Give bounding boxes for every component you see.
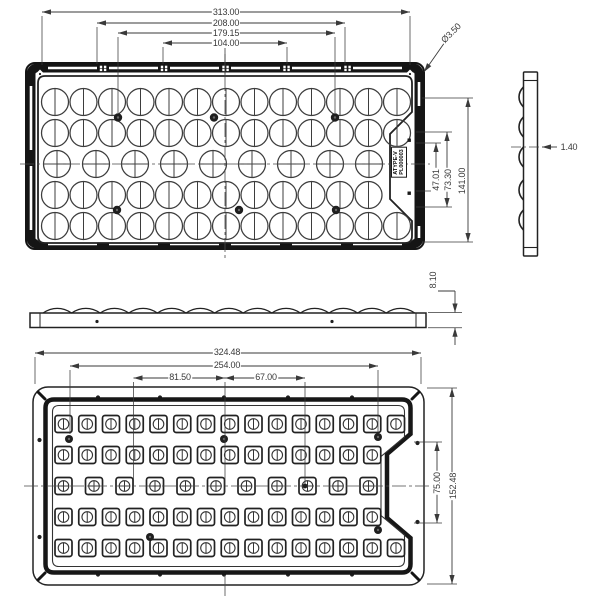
dim-top-height-inner: 47.01 <box>431 168 441 192</box>
bottom-view <box>24 387 434 596</box>
corner-screw-center <box>39 73 41 75</box>
dim-bottom-width-total: 324.48 <box>213 347 241 357</box>
dim-bottom-height-total: 152.48 <box>448 472 458 500</box>
screw-hole-center <box>68 438 70 440</box>
dim-arrow <box>278 40 287 45</box>
frame-clip <box>226 69 228 71</box>
frame-clip <box>222 66 224 68</box>
frame-clip <box>348 69 350 71</box>
dim-top-width-mid: 208.00 <box>212 18 240 28</box>
dim-arrow <box>296 375 305 380</box>
dim-arrow <box>163 40 172 45</box>
frame-clip <box>104 66 106 68</box>
frame-clip <box>344 69 346 71</box>
profile-dot <box>95 320 98 323</box>
drawing-sheet: 313.00 208.00 179.15 104.00 Ø3.50 47.01 … <box>0 0 600 600</box>
screw-hole-center <box>377 436 379 438</box>
dim-arrow <box>465 98 470 107</box>
dim-top-width-inner: 104.00 <box>212 38 240 48</box>
dim-arrow <box>118 30 127 35</box>
dim-top-width-holes: 179.15 <box>212 28 240 38</box>
dim-arrow <box>326 30 335 35</box>
frame-clip <box>222 69 224 71</box>
frame-clip <box>161 69 163 71</box>
frame-clip <box>165 69 167 71</box>
frame-clip <box>104 69 106 71</box>
frame-clip <box>165 66 167 68</box>
dim-arrow <box>452 304 457 313</box>
dim-arrow <box>444 198 449 207</box>
front-profile-view <box>30 308 426 327</box>
dim-arrow <box>433 143 438 152</box>
reference-dot <box>303 484 308 489</box>
screw-hole-center <box>335 209 337 211</box>
dim-arrow <box>542 144 551 149</box>
dim-arrow <box>70 363 79 368</box>
dim-bottom-width-right: 67.00 <box>254 372 278 382</box>
screw-hole-center <box>238 209 240 211</box>
screw-hole-center <box>213 116 215 118</box>
dim-arrow <box>369 363 378 368</box>
frame-clip <box>283 69 285 71</box>
dim-arrow <box>42 9 51 14</box>
dim-bottom-width-mid: 254.00 <box>213 360 241 370</box>
screw-hole-center <box>117 116 119 118</box>
frame-clip <box>100 69 102 71</box>
screw-hole-center <box>377 529 379 531</box>
frame-clip <box>344 66 346 68</box>
dim-arrow <box>449 575 454 584</box>
dim-arrow <box>216 375 225 380</box>
dim-arrow <box>412 350 421 355</box>
dim-arrow <box>134 375 143 380</box>
frame-clip <box>161 66 163 68</box>
dim-arrow <box>452 328 457 337</box>
dim-arrow <box>336 20 345 25</box>
dim-arrow <box>444 132 449 141</box>
dim-arrow <box>465 233 470 242</box>
corner-screw-center <box>409 73 411 75</box>
edge-dot <box>37 535 41 539</box>
frame-clip <box>283 66 285 68</box>
profile-dot <box>330 320 333 323</box>
dim-front-height: 8.10 <box>428 271 438 290</box>
dim-bottom-height-inner: 75.00 <box>432 471 442 495</box>
frame-clip <box>348 66 350 68</box>
dim-top-height-mid: 73.30 <box>443 168 453 192</box>
edge-dot <box>415 520 419 524</box>
edge-dot <box>37 438 41 442</box>
wall-clip <box>408 139 411 142</box>
edge-dot <box>415 441 419 445</box>
screw-hole-center <box>149 536 151 538</box>
side-body <box>524 72 538 256</box>
profile-body <box>30 313 426 328</box>
screw-hole-center <box>116 209 118 211</box>
dim-top-height-total: 141.00 <box>457 167 467 195</box>
frame-clip <box>100 66 102 68</box>
dim-arrow <box>97 20 106 25</box>
screw-hole-center <box>334 116 336 118</box>
dim-arrow <box>434 514 439 523</box>
dim-top-width-total: 313.00 <box>212 7 240 17</box>
dim-arrow <box>401 9 410 14</box>
cad-line-art <box>0 0 600 600</box>
dim-bottom-width-left: 81.50 <box>168 372 192 382</box>
dim-arrow <box>35 350 44 355</box>
dim-arrow <box>225 375 234 380</box>
part-label: ATYPE-V PL000003 <box>391 146 407 177</box>
dim-side-thickness: 1.40 <box>560 142 579 152</box>
top-view <box>20 54 430 258</box>
side-profile-view <box>511 72 553 256</box>
part-label-line2: PL000003 <box>399 149 405 174</box>
dim-arrow <box>449 388 454 397</box>
frame-clip <box>226 66 228 68</box>
dim-arrow <box>434 442 439 451</box>
frame-clip <box>287 69 289 71</box>
wall-clip <box>408 192 411 195</box>
frame-clip <box>287 66 289 68</box>
